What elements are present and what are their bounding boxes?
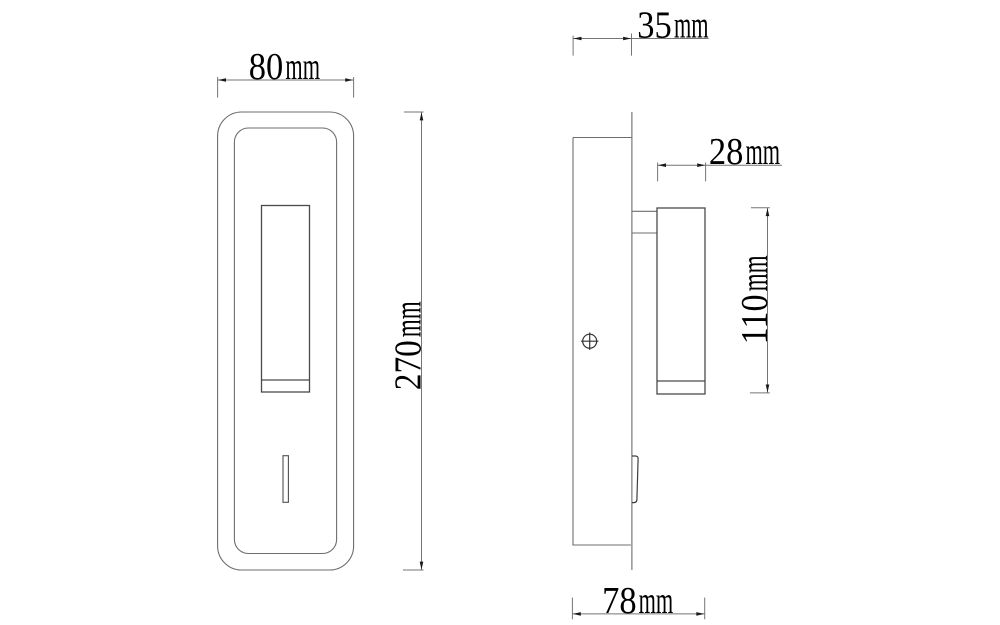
- svg-text:78mm: 78mm: [602, 580, 673, 622]
- svg-text:110mm: 110mm: [734, 255, 776, 344]
- svg-text:270mm: 270mm: [388, 301, 430, 390]
